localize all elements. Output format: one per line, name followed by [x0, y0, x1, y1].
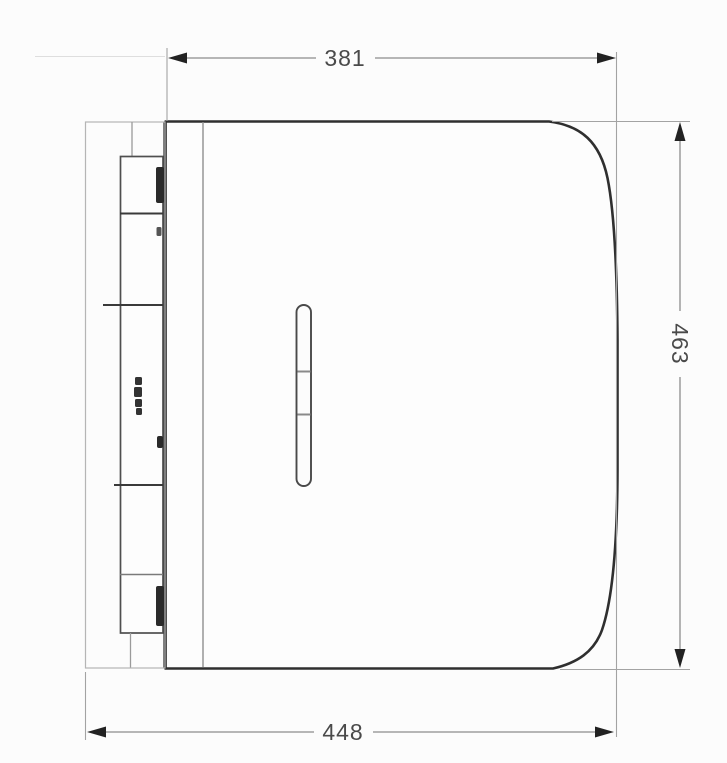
clip-icon: [156, 586, 164, 626]
clip-icon: [157, 227, 162, 236]
dimension-label-height: 463: [667, 323, 693, 364]
dimension-arrowhead-icon: [675, 122, 686, 141]
dimension-463: 463: [667, 122, 693, 668]
clip-icon: [157, 436, 163, 448]
center-slot: [297, 305, 312, 486]
dimension-arrowhead-icon: [597, 53, 616, 64]
dimension-arrowhead-icon: [595, 727, 614, 738]
dimension-arrowhead-icon: [168, 53, 187, 64]
slot-outline: [297, 305, 312, 486]
dimension-381: 381: [168, 45, 616, 71]
dimension-drawing-svg: 381 463 448: [0, 0, 727, 763]
unit-body: [165, 122, 618, 669]
dimension-arrowhead-icon: [87, 727, 106, 738]
dimension-arrowhead-icon: [675, 649, 686, 668]
dimension-448: 448: [87, 719, 614, 745]
body-outline: [166, 122, 618, 669]
dimension-label-width: 381: [324, 45, 365, 71]
mounting-plate: [86, 122, 166, 668]
dimension-label-depth: 448: [322, 719, 363, 745]
clip-icon: [156, 167, 164, 203]
technical-drawing-page: 381 463 448: [0, 0, 727, 763]
